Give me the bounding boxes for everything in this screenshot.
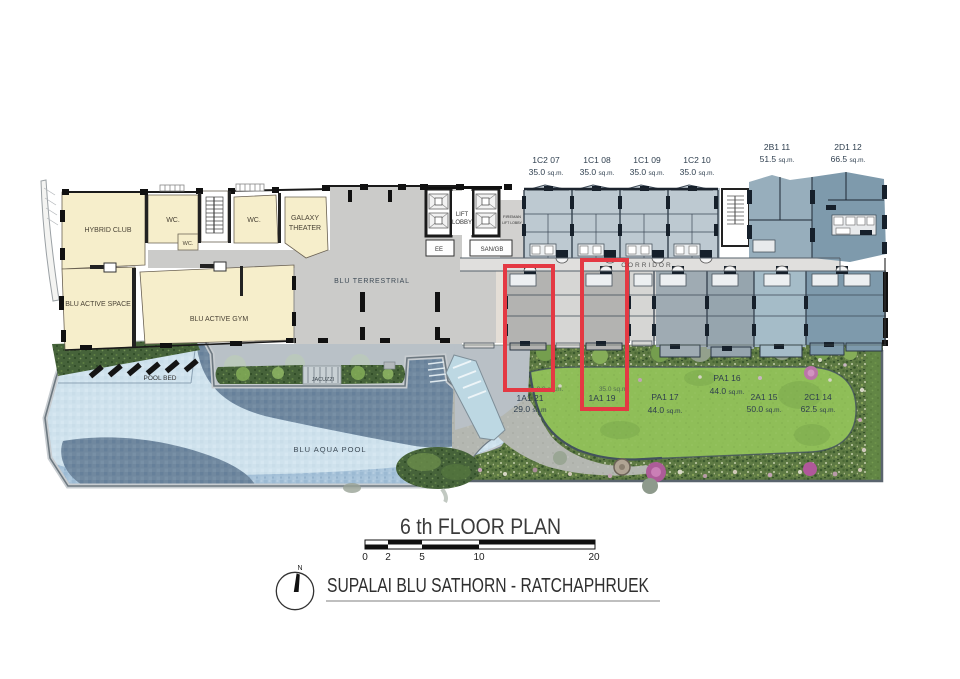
svg-text:CORRIDOR: CORRIDOR bbox=[621, 262, 672, 269]
svg-text:1C2 10: 1C2 10 bbox=[683, 155, 711, 165]
svg-text:GALAXY: GALAXY bbox=[291, 215, 319, 222]
svg-text:1A1 21: 1A1 21 bbox=[517, 393, 544, 403]
svg-text:WC.: WC. bbox=[166, 217, 180, 224]
svg-text:EE: EE bbox=[435, 247, 443, 253]
svg-text:PA1 17: PA1 17 bbox=[651, 392, 679, 402]
svg-text:LOBBY: LOBBY bbox=[452, 220, 472, 226]
svg-text:2: 2 bbox=[385, 552, 391, 563]
svg-text:HYBRID CLUB: HYBRID CLUB bbox=[84, 227, 131, 234]
svg-text:POOL BED: POOL BED bbox=[144, 375, 177, 382]
svg-text:1C1 08: 1C1 08 bbox=[583, 155, 611, 165]
svg-text:BLU AQUA POOL: BLU AQUA POOL bbox=[293, 445, 366, 454]
svg-text:BLU ACTIVE GYM: BLU ACTIVE GYM bbox=[190, 316, 249, 323]
svg-text:SUPALAI BLU SATHORN - RATCHA: SUPALAI BLU SATHORN - RATCHAPHRUEK bbox=[327, 575, 650, 597]
svg-text:1C1 09: 1C1 09 bbox=[633, 155, 661, 165]
svg-text:SAN/GB: SAN/GB bbox=[481, 247, 504, 253]
svg-text:2C1 14: 2C1 14 bbox=[804, 392, 832, 402]
svg-text:LIFT LOBBY: LIFT LOBBY bbox=[502, 221, 522, 225]
svg-text:BLU ACTIVE SPACE: BLU ACTIVE SPACE bbox=[65, 301, 131, 308]
svg-text:35.0 sq.m.: 35.0 sq.m. bbox=[599, 386, 630, 393]
svg-text:JACUZZI: JACUZZI bbox=[312, 377, 335, 383]
svg-text:BLU TERRESTRIAL: BLU TERRESTRIAL bbox=[334, 278, 410, 285]
svg-text:1A1 19: 1A1 19 bbox=[589, 393, 616, 403]
svg-text:THEATER: THEATER bbox=[289, 225, 321, 232]
svg-text:2B1 11: 2B1 11 bbox=[764, 142, 791, 152]
svg-text:2A1 15: 2A1 15 bbox=[751, 392, 778, 402]
svg-text:6 th FLOOR PLAN: 6 th FLOOR PLAN bbox=[400, 514, 561, 539]
svg-text:PA1 16: PA1 16 bbox=[713, 373, 741, 383]
svg-text:N: N bbox=[297, 565, 302, 572]
svg-text:2D1 12: 2D1 12 bbox=[834, 142, 862, 152]
svg-text:5: 5 bbox=[419, 552, 425, 563]
svg-text:20: 20 bbox=[588, 552, 600, 563]
svg-text:LIFT: LIFT bbox=[456, 212, 469, 218]
svg-text:FIREMAN: FIREMAN bbox=[503, 214, 521, 219]
svg-text:WC.: WC. bbox=[183, 241, 194, 247]
svg-text:1C2 07: 1C2 07 bbox=[532, 155, 560, 165]
svg-text:10: 10 bbox=[473, 552, 485, 563]
svg-text:WC.: WC. bbox=[247, 217, 261, 224]
svg-text:0: 0 bbox=[362, 552, 368, 563]
